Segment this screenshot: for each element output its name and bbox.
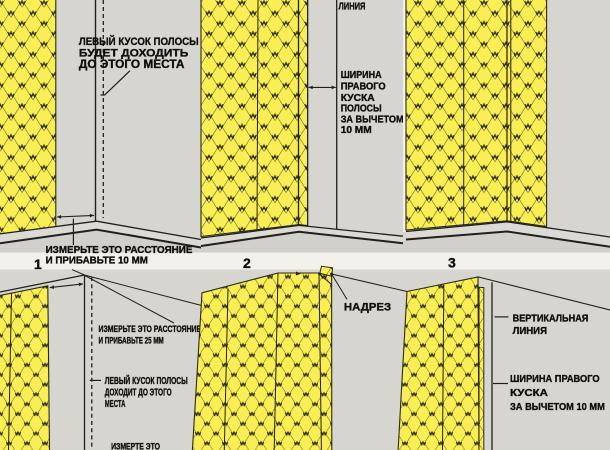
svg-text:И ПРИБАВЬТЕ 10 ММ: И ПРИБАВЬТЕ 10 ММ xyxy=(46,255,148,266)
svg-text:2: 2 xyxy=(243,255,251,271)
svg-text:ВЕРТИКАЛЬНАЯ: ВЕРТИКАЛЬНАЯ xyxy=(513,312,589,323)
svg-text:ЛИНИЯ: ЛИНИЯ xyxy=(513,326,547,337)
svg-text:ЗА ВЫЧЕТОМ: ЗА ВЫЧЕТОМ xyxy=(341,114,404,125)
svg-text:КУСКА: КУСКА xyxy=(510,387,548,398)
svg-text:ПРАВОГО: ПРАВОГО xyxy=(341,81,386,92)
svg-text:НАДРЕЗ: НАДРЕЗ xyxy=(344,302,391,314)
svg-text:ИЗМЕРЬТЕ ЭТО РАССТОЯНИЕ: ИЗМЕРЬТЕ ЭТО РАССТОЯНИЕ xyxy=(99,324,202,334)
svg-text:И ПРИБАВЬТЕ 25 ММ: И ПРИБАВЬТЕ 25 ММ xyxy=(99,335,165,346)
svg-text:ИЗМЕРТЕ ЭТО: ИЗМЕРТЕ ЭТО xyxy=(111,441,160,450)
svg-text:ШИРИНА: ШИРИНА xyxy=(341,69,382,81)
svg-text:ЛИНИЯ: ЛИНИЯ xyxy=(339,1,366,12)
svg-text:ЗА ВЫЧЕТОМ 10 ММ: ЗА ВЫЧЕТОМ 10 ММ xyxy=(510,402,605,413)
svg-text:ПОЛОСЫ: ПОЛОСЫ xyxy=(341,102,382,114)
svg-text:3: 3 xyxy=(448,255,456,271)
svg-text:ДОХОДИТ ДО ЭТОГО: ДОХОДИТ ДО ЭТОГО xyxy=(105,386,172,398)
svg-text:ДО ЭТОГО МЕСТА: ДО ЭТОГО МЕСТА xyxy=(79,58,185,71)
svg-text:МЕСТА: МЕСТА xyxy=(105,398,126,409)
svg-text:ЛЕВЫЙ КУСОК ПОЛОСЫ: ЛЕВЫЙ КУСОК ПОЛОСЫ xyxy=(105,374,188,387)
svg-text:10 ММ: 10 ММ xyxy=(341,125,372,136)
svg-text:ШИРИНА ПРАВОГО: ШИРИНА ПРАВОГО xyxy=(510,374,600,385)
